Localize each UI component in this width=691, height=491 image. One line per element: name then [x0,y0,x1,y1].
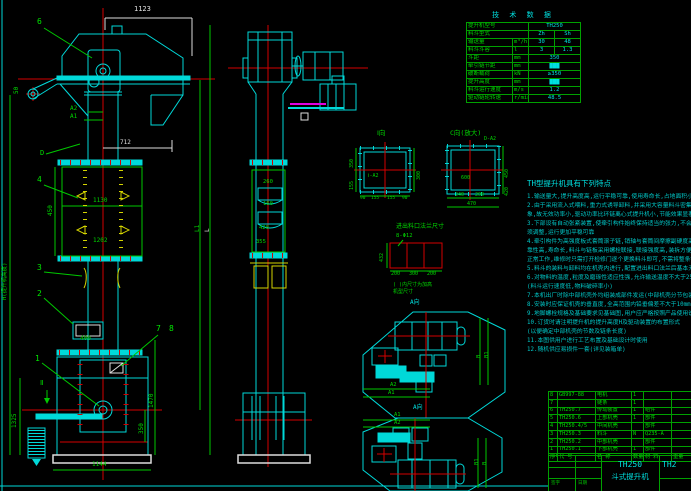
plan1-dim-b1: B1 [485,351,491,358]
table-row: 3 TH250.3 料斗 N Q235-A [549,430,691,438]
table-row: 料斗运行速度 m/s 1.2 [467,87,581,95]
features-line: 5.料斗的装料与卸料均在机壳内进行,配置进出料口法兰后基本无粉尘外溢,对环境污染… [527,265,691,274]
spec-label: 提升机型号 [467,23,529,31]
flange-detail-c [441,140,503,207]
features-line: 2.由于采用流入式喂料,重力式诱导卸料,并采用大容量料斗密集布置,物料提升时几乎… [527,202,691,211]
balloon-3: 3 [37,264,42,272]
bom-wt [672,392,691,400]
bom-name: 中部机壳 [596,438,632,446]
plan2-dim-b1: B1 [475,458,481,465]
dim-a2: A2 [70,106,77,112]
outlet-flange-detail [387,240,442,271]
dim-l: L [205,228,211,232]
bom-qty: 1 [632,407,644,415]
bom-code: TH250.4/5 [558,423,596,431]
features-line: 12.随机供应易损件一套(详见装箱单) [527,346,691,355]
front-view-casing [57,92,142,355]
dim-260: 260 [263,180,273,186]
dim-400: 400 [80,336,91,342]
spec-value: 350 [529,55,581,63]
front-view-boot [28,357,151,466]
flange-i-dim-350: 350 [350,159,355,168]
outlet-note-2: 机型尺寸 [393,290,413,295]
features-line: 7.本机出厂时除中部机壳外均组装成部件发运(中部机壳分节包装发运) [527,292,691,301]
spec-value: 30 [529,39,555,47]
table-row: 1 TH250.1 下部机壳 1 部件 [549,446,691,454]
title-block-signature-grid: 签字 日期 [549,456,602,491]
features-notes: TH型提升机具有下列特点 1.输送量大,提升高度高,运行平稳可靠,使用寿命长,占… [527,178,691,393]
spec-unit: mm [513,63,529,71]
dim-350: 350 [139,423,145,434]
bom-code: TH250.1 [558,446,596,454]
bom-mat [644,392,672,400]
drawing-number: TH2 [662,460,691,469]
features-line: 6.对物料的温度,粒度及磨琢性适应性强,允许输送温度不大于250℃的物料 [527,274,691,283]
features-line: (以便确定中部机壳的节数及链条长度) [527,328,691,337]
bom-name: 下部机壳 [596,446,632,454]
balloon-8: 8 [169,325,174,333]
bom-mat: 部件 [644,446,672,454]
features-line: 须调整,运行更加平稳可靠 [527,229,691,238]
spec-value: TH250 [529,23,581,31]
plan-view-boot [363,418,502,491]
view-label-a2: A向 [413,405,423,411]
outlet-note-1: ( )内尺寸为加高 [393,283,432,288]
plan2-dim-b: B [483,462,489,465]
flange-i-dim-300: 300 [417,171,422,180]
spec-label: 破断载荷 [467,71,513,79]
plan1-dim-a2: A2 [390,383,397,389]
side-view-tube [238,94,310,463]
table-row: 7 链条 1 [549,399,691,407]
section-label-2: Ⅱ [40,380,43,387]
dim-160: 160 [263,202,273,208]
dim-1130: 1130 [93,198,107,204]
view-label-i: Ⅰ向 [377,130,385,137]
spec-table: 技 术 数 据 提升机型号 TH250 料斗型式 Zh Sh 输送量 m³/h … [466,10,580,103]
spec-label: 斗距 [467,55,513,63]
table-row: 提升机型号 TH250 [467,23,581,31]
spec-value: Zh [529,31,555,39]
bom-wt [672,407,691,415]
title-block: 签字 日期 TH250 斗式提升机 TH2 [548,455,691,491]
bom-qty [632,423,644,431]
flange-c-dim-200: 200 [475,193,484,198]
spec-unit: kN [513,71,529,79]
spec-label: 料斗斗容 [467,47,513,55]
features-line: 11.本图供用户进行工艺布置及基础设计时使用 [527,337,691,346]
bom-wt [672,399,691,407]
dim-50: 50 [14,87,20,94]
signature-label: 签字 [551,482,560,487]
flange-c-dim-450: 450 [505,169,510,178]
dim-712: 712 [120,140,131,146]
bom-qty: 1 [632,415,644,423]
spec-value: 1.2 [529,87,581,95]
flange-c-dim-240: 240 [455,193,464,198]
bom-no: 1 [549,446,558,454]
spec-unit: r/min [513,95,529,103]
bom-wt [672,423,691,431]
features-line: 正常工作,维修时只需打开检修门逐个更换料斗即可,不需将整条链取出 [527,256,691,265]
bom-qty: 1 [632,399,644,407]
drawing-title: 斗式提升机 [601,471,659,482]
table-row: 牵引链节距 mm ███ [467,63,581,71]
bom-code: TH250.3 [558,430,596,438]
bom-name: 电机 [596,392,632,400]
table-row: 输送量 m³/h 30 48 [467,39,581,47]
bom-name: 链条 [596,399,632,407]
flange-i-dim-155b: 155 [387,197,395,202]
date-label: 日期 [578,482,587,487]
spec-value: 1.3 [555,47,581,55]
features-line: 靠性高,寿命长,料斗与链板采用螺栓联接,联接强度高,装拆方便,即使个别料斗损坏也… [527,247,691,256]
features-line: 9.地脚螺栓规格及基础要求见基础图,用户应严格按照产品使用说明书中的规定进行安装… [527,310,691,319]
plan1-dim-b: B [477,355,483,358]
dim-1202: 1202 [93,238,107,244]
features-line: 4.牵引构件为高强度板式套筒滚子链,销轴与套筒间摩擦副硬度高且接触良好,耐磨损性… [527,238,691,247]
bom-code: TH250.7 [558,407,596,415]
front-view-head [28,26,190,125]
bom-mat: 部件 [644,423,672,431]
flange-detail-i [354,142,416,198]
flange-c-note: D-A2 [484,137,496,142]
bom-mat: Q235-A [644,430,672,438]
table-row: 4 TH250.4/5 中间机壳 部件 [549,423,691,431]
spec-unit: m³/h [513,39,529,47]
bom-name: 料斗 [596,430,632,438]
dim-a1: A1 [70,114,77,120]
bom-code: GB997-88 [558,392,596,400]
plan-view-head [363,312,505,418]
bom-name: 传动装置 [596,407,632,415]
bom-qty: 1 [632,392,644,400]
bom-name: 上部机壳 [596,415,632,423]
flange-c-dim-600: 600 [461,176,470,181]
spec-label: 输送量 [467,39,513,47]
features-line: 10.订货时请注明提升机的提升高度H及驱动装置的布置形式 [527,319,691,328]
features-line: 象,故无效功率小,驱动功率比环链离心式提升机小,节能效果显著 [527,211,691,220]
bom-qty: 1 [632,446,644,454]
balloon-7: 7 [156,325,161,333]
flange-i-dim-155l: 155 [350,181,355,190]
title-block-center: TH250 斗式提升机 [601,456,660,491]
spec-value: Sh [555,31,581,39]
bom-code: TH250.2 [558,438,596,446]
table-row: 斗距 mm 350 [467,55,581,63]
bom-mat: 部件 [644,415,672,423]
bom-no: 3 [549,430,558,438]
bom-wt [672,430,691,438]
features-title: TH型提升机具有下列特点 [527,178,691,189]
dim-1123: 1123 [134,6,151,13]
dim-450: 450 [48,205,54,216]
bom-no: 8 [549,392,558,400]
bom-name: 中间机壳 [596,423,632,431]
spec-unit: mm [513,55,529,63]
dim-height-h: H(提升机高度) [3,263,9,300]
spec-unit: l [513,47,529,55]
balloon-6: 6 [37,18,42,26]
outlet-dim-200a: 200 [391,272,400,277]
side-view-head-drive [243,32,356,120]
balloon-4: 4 [37,176,42,184]
bom-qty [632,438,644,446]
features-line: 1.输送量大,提升高度高,运行平稳可靠,使用寿命长,占地面积小是其一大特点 [527,193,691,202]
bom-qty: N [632,430,644,438]
bom-wt [672,446,691,454]
bom-code [558,399,596,407]
table-row: 5 TH250.6 上部机壳 1 部件 [549,415,691,423]
cad-viewport[interactable]: 1123 A2 A1 712 50 450 1130 1202 400 1325… [0,0,691,491]
table-row: 2 TH250.2 中部机壳 部件 [549,438,691,446]
bom-no: 6 [549,407,558,415]
dim-l1: L1 [195,225,201,232]
side-view-centerlines [228,25,368,467]
spec-label: 料斗运行速度 [467,87,513,95]
view-label-d: D [40,150,44,157]
balloon-1: 1 [35,355,40,363]
spec-label: 提升高度 [467,79,513,87]
bom-no: 4 [549,423,558,431]
table-row: 提升高度 mm ███ [467,79,581,87]
bom-wt [672,438,691,446]
bom-no: 5 [549,415,558,423]
spec-label: 驱动链轮转速 [467,95,513,103]
table-row: 8 GB997-88 电机 1 [549,392,691,400]
spec-table-title: 技 术 数 据 [466,10,580,20]
outlet-holes-label: 8-Φ12 [396,234,413,240]
spec-value: ███ [529,79,581,87]
view-label-c: C向(放大) [450,130,481,137]
flange-c-dim-420: 420 [505,187,510,196]
spec-value: 3 [529,47,555,55]
bom-no: 2 [549,438,558,446]
plan2-dim-a1: A1 [394,413,401,419]
bom-mat: 部件 [644,438,672,446]
features-line: (料斗运行速度低,物料破碎率小) [527,283,691,292]
spec-label: 料斗型式 [467,31,529,39]
features-line: 8.安装时应保证机壳的垂直度,全高范围内铅垂偏差不大于10mm [527,301,691,310]
plan2-dim-a2: A2 [394,421,401,427]
drawing-model: TH250 [601,460,659,469]
outlet-dim-300: 300 [409,272,418,277]
spec-value: 48 [555,39,581,47]
bom-wt [672,415,691,423]
table-row: 料斗型式 Zh Sh [467,31,581,39]
table-row: 6 TH250.7 传动装置 1 组件 [549,407,691,415]
dim-420: 420 [259,226,269,232]
dim-355: 355 [256,240,266,246]
outlet-dim-432: 432 [380,253,385,262]
spec-unit: m/s [513,87,529,95]
flange-caption: 进出料口法兰尺寸 [396,224,444,230]
flange-i-dim-155a: 155 [371,197,379,202]
bom-mat [644,399,672,407]
plan1-dim-a1: A1 [388,391,395,397]
flange-c-dim-470: 470 [467,202,476,207]
outlet-dim-200b: 200 [427,272,436,277]
spec-value: ≥350 [529,71,581,79]
spec-label: 牵引链节距 [467,63,513,71]
bom-mat: 组件 [644,407,672,415]
spec-value: 48.5 [529,95,581,103]
flange-i-dim-90b: 90 [402,197,407,202]
balloon-2: 2 [37,290,42,298]
dim-1144: 1144 [92,462,106,468]
bom-code: TH250.6 [558,415,596,423]
bom-no: 7 [549,399,558,407]
dim-1325: 1325 [12,414,18,428]
spec-unit: mm [513,79,529,87]
flange-i-dim-90a: 90 [360,197,365,202]
bom-table: 8 GB997-88 电机 1 7 链条 1 6 TH250.7 传动装置 1 … [548,391,691,462]
flange-i-note: Ⅰ-A2 [368,174,379,179]
dim-1470: 1470 [149,394,155,408]
title-block-right: TH2 [659,456,691,491]
table-row: 破断载荷 kN ≥350 [467,71,581,79]
spec-value: ███ [529,63,581,71]
view-label-a1: A向 [410,300,420,306]
table-row: 驱动链轮转速 r/min 48.5 [467,95,581,103]
table-row: 料斗斗容 l 3 1.3 [467,47,581,55]
features-line: 3.下部设有自动张紧装置,使牵引构件始终保持适当的张力,不会因链条磨损伸长而松弛… [527,220,691,229]
